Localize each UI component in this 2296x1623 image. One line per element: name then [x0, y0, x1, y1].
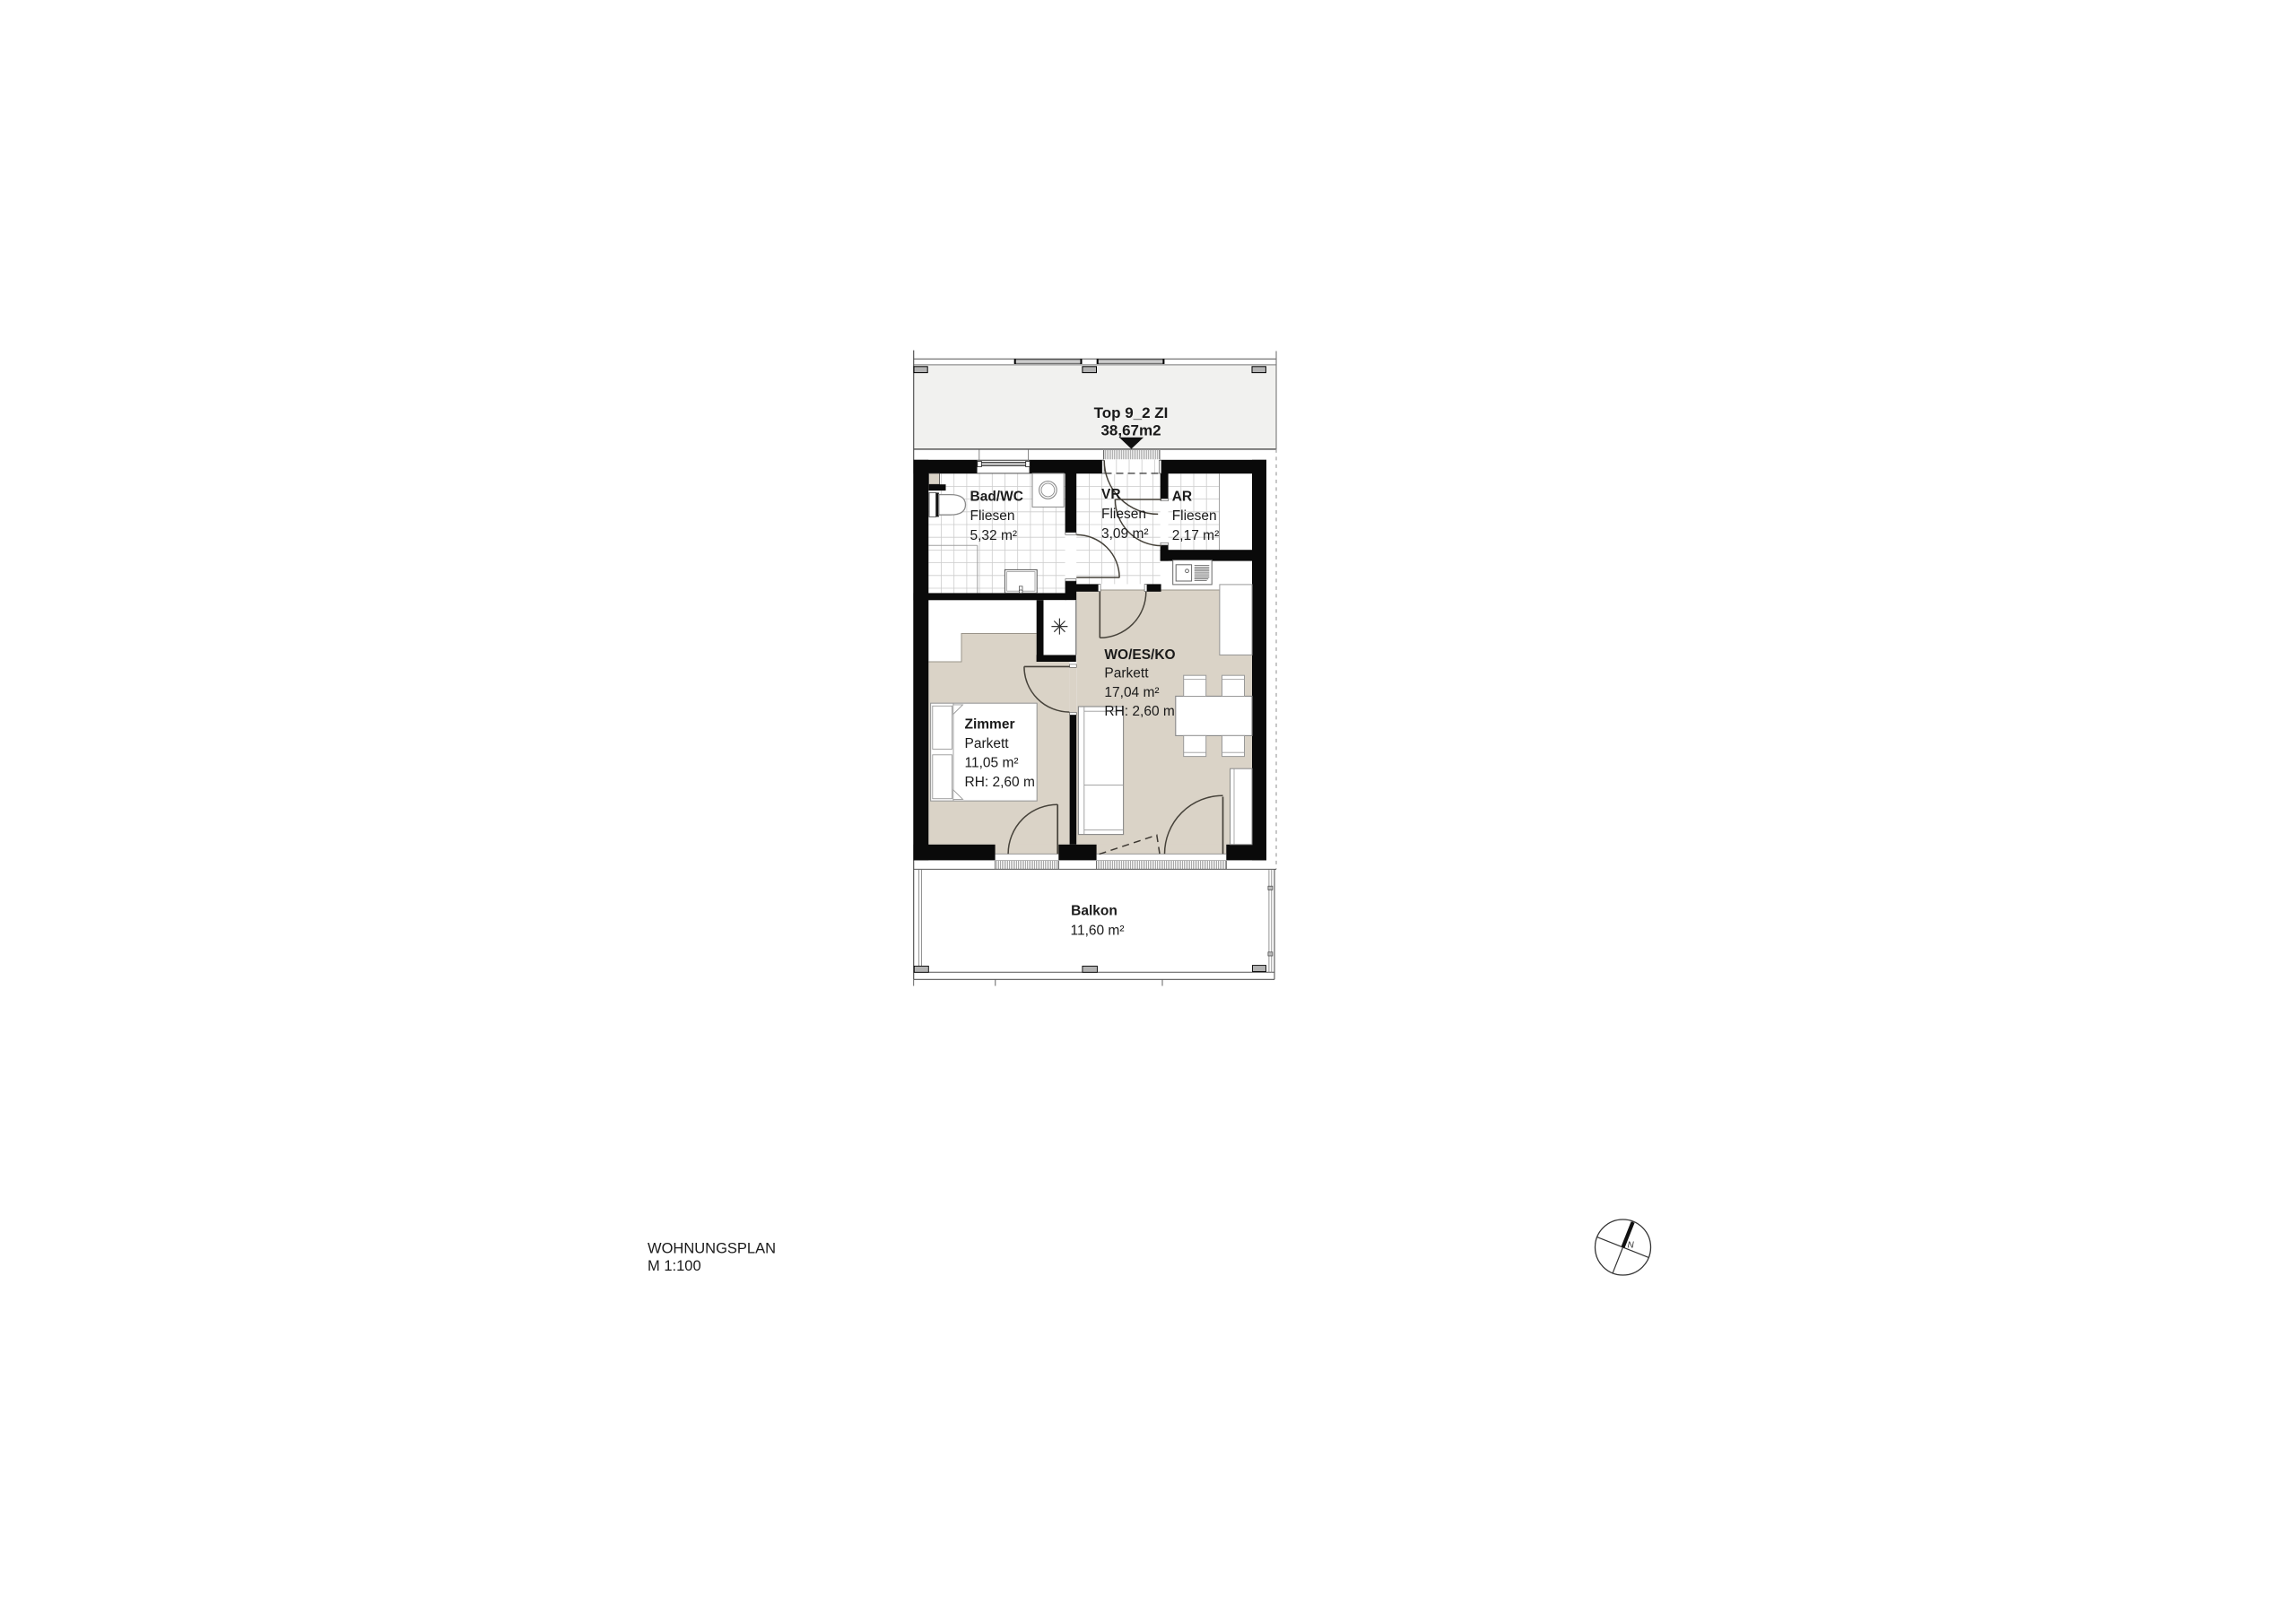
svg-text:Parkett: Parkett — [965, 736, 1010, 751]
svg-text:2,17 m²: 2,17 m² — [1172, 528, 1220, 543]
svg-text:WOHNUNGSPLAN: WOHNUNGSPLAN — [648, 1241, 776, 1257]
svg-text:WO/ES/KO: WO/ES/KO — [1104, 647, 1175, 663]
svg-text:M 1:100: M 1:100 — [648, 1258, 701, 1274]
svg-text:Balkon: Balkon — [1071, 904, 1118, 919]
svg-text:5,32 m²: 5,32 m² — [970, 528, 1018, 543]
svg-text:3,09 m²: 3,09 m² — [1101, 526, 1149, 542]
svg-text:Fliesen: Fliesen — [1101, 507, 1146, 522]
svg-text:Fliesen: Fliesen — [1172, 508, 1217, 524]
svg-text:Top 9_2 ZI: Top 9_2 ZI — [1094, 404, 1169, 421]
svg-text:11,05 m²: 11,05 m² — [965, 756, 1019, 771]
svg-text:AR: AR — [1172, 489, 1192, 504]
svg-text:RH: 2,60 m: RH: 2,60 m — [965, 775, 1035, 790]
svg-text:Zimmer: Zimmer — [965, 716, 1015, 732]
svg-text:11,60 m²: 11,60 m² — [1070, 923, 1124, 938]
svg-text:17,04 m²: 17,04 m² — [1104, 685, 1159, 700]
svg-text:38,67m2: 38,67m2 — [1100, 422, 1161, 439]
svg-text:N: N — [1628, 1240, 1635, 1250]
svg-text:Bad/WC: Bad/WC — [970, 490, 1023, 505]
svg-text:RH: 2,60 m: RH: 2,60 m — [1104, 704, 1174, 719]
svg-text:Fliesen: Fliesen — [970, 508, 1015, 524]
svg-text:Parkett: Parkett — [1104, 666, 1149, 681]
svg-text:VR: VR — [1101, 487, 1121, 502]
